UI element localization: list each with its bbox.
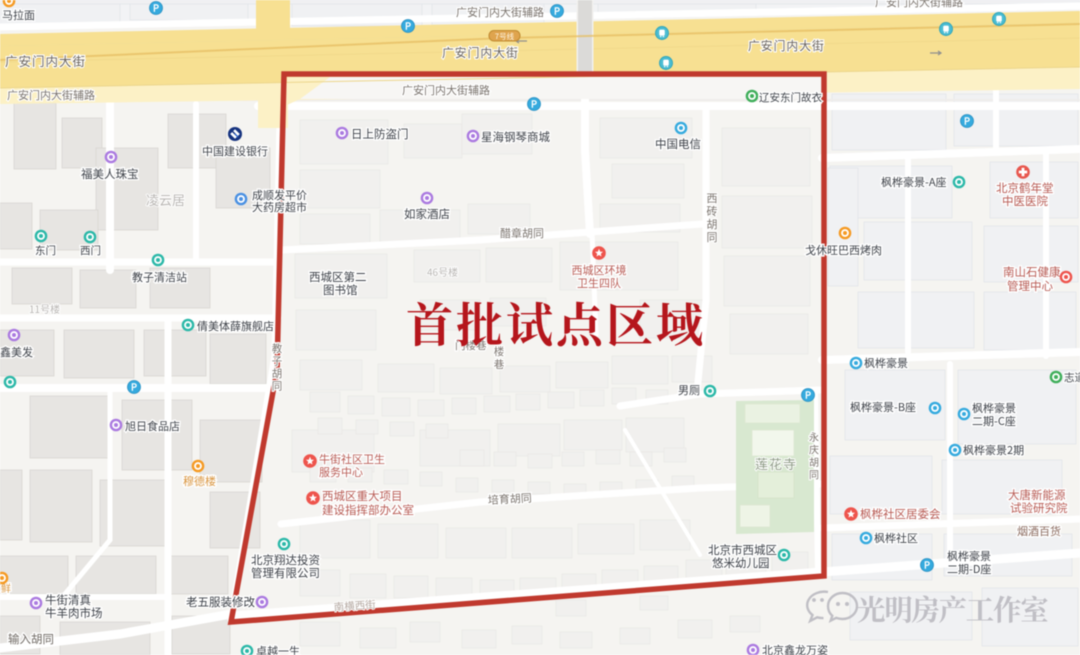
svg-text:P: P bbox=[405, 18, 411, 32]
svg-text:11号楼: 11号楼 bbox=[29, 301, 60, 316]
svg-text:46号楼: 46号楼 bbox=[427, 264, 458, 279]
svg-text:试验研究院: 试验研究院 bbox=[1010, 500, 1068, 516]
svg-text:广安门内大街: 广安门内大街 bbox=[5, 51, 86, 70]
svg-text:醋章胡同: 醋章胡同 bbox=[500, 225, 544, 241]
svg-text:西砖胡同: 西砖胡同 bbox=[707, 190, 718, 245]
svg-text:穆德楼: 穆德楼 bbox=[183, 473, 216, 489]
svg-text:广安门内大街辅路: 广安门内大街辅路 bbox=[456, 4, 544, 20]
svg-text:烟酒百货: 烟酒百货 bbox=[1017, 523, 1061, 539]
svg-text:枫桦社区: 枫桦社区 bbox=[874, 530, 918, 546]
svg-text:P: P bbox=[964, 113, 970, 127]
svg-text:卓越一生: 卓越一生 bbox=[256, 643, 300, 655]
svg-text:倩美体薛旗舰店: 倩美体薛旗舰店 bbox=[197, 318, 274, 334]
svg-text:鑫美发: 鑫美发 bbox=[0, 344, 33, 360]
svg-text:P: P bbox=[924, 557, 930, 571]
svg-text:培育胡同: 培育胡同 bbox=[487, 490, 532, 508]
svg-text:西门: 西门 bbox=[80, 243, 101, 258]
svg-text:福美人珠宝: 福美人珠宝 bbox=[81, 166, 139, 182]
svg-text:光明房产工作室: 光明房产工作室 bbox=[857, 588, 1048, 629]
svg-text:二期-D座: 二期-D座 bbox=[947, 561, 991, 577]
svg-text:P: P bbox=[554, 3, 560, 17]
svg-text:永庆胡同: 永庆胡同 bbox=[809, 429, 819, 482]
svg-text:凌云居: 凌云居 bbox=[146, 190, 185, 209]
svg-text:管理中心: 管理中心 bbox=[1007, 278, 1053, 294]
svg-text:枫桦豪景-A座: 枫桦豪景-A座 bbox=[881, 174, 947, 190]
svg-text:中国建设银行: 中国建设银行 bbox=[202, 143, 268, 159]
svg-text:枫桦豪景: 枫桦豪景 bbox=[864, 355, 908, 371]
svg-text:大药房超市: 大药房超市 bbox=[252, 199, 307, 215]
svg-text:如家酒店: 如家酒店 bbox=[404, 206, 450, 222]
svg-text:中国电信: 中国电信 bbox=[655, 136, 701, 152]
svg-text:建设指挥部办公室: 建设指挥部办公室 bbox=[322, 502, 414, 518]
svg-text:枫桦豪景2期: 枫桦豪景2期 bbox=[963, 442, 1024, 458]
svg-text:广安门内大街辅路: 广安门内大街辅路 bbox=[402, 82, 490, 98]
svg-text:P: P bbox=[131, 379, 137, 393]
svg-text:管理有限公司: 管理有限公司 bbox=[251, 565, 320, 581]
svg-text:输入胡同: 输入胡同 bbox=[8, 631, 54, 647]
svg-text:7号线: 7号线 bbox=[495, 31, 515, 42]
svg-text:莲花寺: 莲花寺 bbox=[755, 454, 797, 473]
svg-text:旭日食品店: 旭日食品店 bbox=[125, 418, 180, 434]
svg-text:P: P bbox=[531, 96, 537, 110]
svg-text:二期-C座: 二期-C座 bbox=[972, 413, 1016, 429]
svg-text:戈休旺巴西烤肉: 戈休旺巴西烤肉 bbox=[805, 242, 882, 258]
svg-text:广安门内大街辅路: 广安门内大街辅路 bbox=[875, 0, 963, 10]
svg-text:东门: 东门 bbox=[35, 243, 56, 258]
svg-text:辽安东门故衣: 辽安东门故衣 bbox=[759, 90, 822, 105]
svg-text:男厕: 男厕 bbox=[678, 382, 700, 398]
svg-text:星海钢琴商城: 星海钢琴商城 bbox=[481, 129, 550, 145]
svg-text:广安门内大街辅路: 广安门内大街辅路 bbox=[7, 87, 95, 103]
svg-text:马拉面: 马拉面 bbox=[2, 7, 35, 23]
svg-text:服务中心: 服务中心 bbox=[319, 464, 363, 480]
svg-text:北京鑫龙万姿: 北京鑫龙万姿 bbox=[762, 642, 828, 655]
svg-text:教子清洁站: 教子清洁站 bbox=[132, 269, 187, 285]
svg-text:牛羊肉市场: 牛羊肉市场 bbox=[45, 605, 103, 621]
svg-text:枫桦社区居委会: 枫桦社区居委会 bbox=[860, 506, 941, 522]
svg-text:老五服装修改: 老五服装修改 bbox=[186, 594, 255, 610]
svg-text:教子胡同: 教子胡同 bbox=[272, 341, 283, 394]
svg-text:广安门内大街: 广安门内大街 bbox=[748, 37, 825, 54]
svg-text:志道: 志道 bbox=[1064, 370, 1080, 385]
svg-text:中医医院: 中医医院 bbox=[1002, 193, 1048, 209]
svg-text:广安门内大街: 广安门内大街 bbox=[442, 44, 519, 61]
svg-text:日上防盗门: 日上防盗门 bbox=[351, 126, 409, 142]
svg-text:首批试点区域: 首批试点区域 bbox=[406, 289, 706, 356]
svg-text:图书馆: 图书馆 bbox=[323, 282, 358, 298]
svg-text:南横西街: 南横西街 bbox=[333, 597, 376, 615]
svg-text:P: P bbox=[153, 0, 159, 14]
svg-text:P: P bbox=[805, 387, 811, 401]
svg-text:枫桦豪景-B座: 枫桦豪景-B座 bbox=[850, 399, 916, 415]
svg-text:悠米幼儿园: 悠米幼儿园 bbox=[712, 555, 770, 571]
